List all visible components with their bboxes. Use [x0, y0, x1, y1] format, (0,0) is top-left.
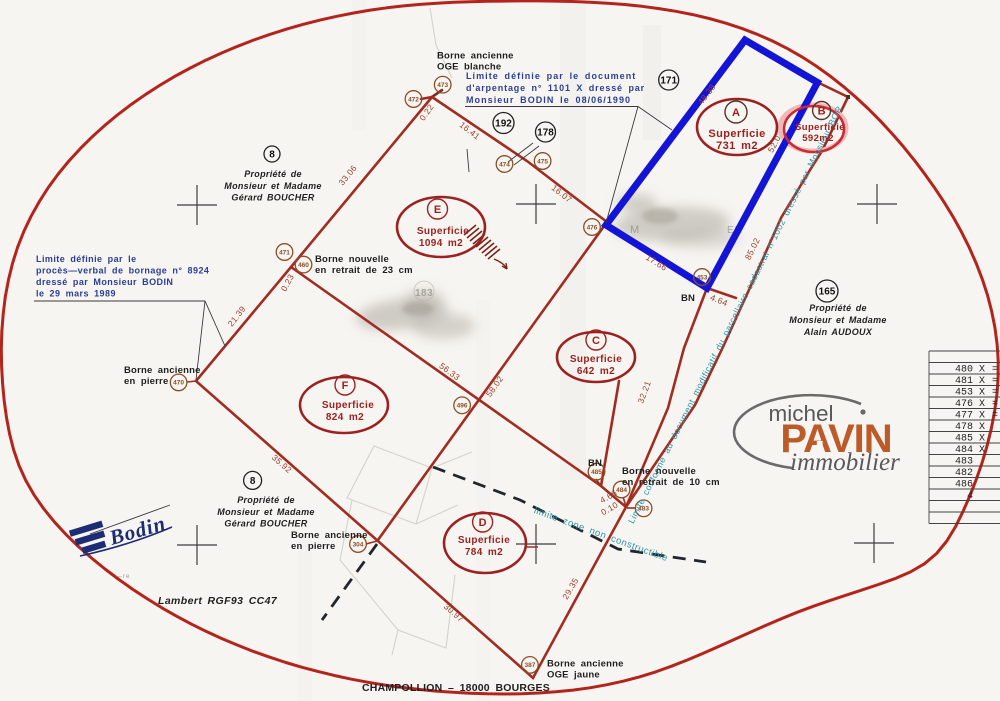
svg-text:481: 481: [955, 376, 973, 387]
svg-text:496: 496: [457, 403, 468, 410]
svg-text:en retrait de 23 cm: en retrait de 23 cm: [315, 265, 413, 276]
svg-text:Lambert RGF93 CC47: Lambert RGF93 CC47: [158, 595, 278, 607]
svg-text:Gérard BOUCHER: Gérard BOUCHER: [231, 193, 314, 203]
svg-text:483: 483: [955, 457, 973, 468]
svg-text:A: A: [732, 107, 740, 119]
svg-text:Monsieur et Madame: Monsieur et Madame: [224, 181, 321, 191]
svg-text:Monsieur et Madame: Monsieur et Madame: [217, 507, 314, 517]
svg-text:178: 178: [537, 128, 554, 139]
svg-text:=: =: [992, 365, 998, 376]
svg-text:171: 171: [660, 76, 677, 87]
svg-text:8: 8: [250, 476, 256, 487]
svg-text:472: 472: [408, 96, 419, 103]
svg-text:—re: —re: [116, 574, 130, 580]
svg-text:192: 192: [495, 119, 512, 130]
svg-text:dressé par Monsieur BODIN: dressé par Monsieur BODIN: [36, 277, 173, 287]
svg-text:X: X: [979, 422, 985, 433]
svg-text:BN: BN: [588, 458, 602, 469]
svg-text:470: 470: [173, 380, 184, 387]
svg-text:Superficie: Superficie: [570, 354, 622, 365]
svg-text:X: X: [979, 388, 985, 399]
svg-text:387: 387: [524, 662, 535, 669]
svg-text:476: 476: [587, 224, 598, 231]
svg-text:le 29 mars 1989: le 29 mars 1989: [36, 289, 116, 299]
svg-text:731 m2: 731 m2: [716, 140, 758, 152]
svg-text:0.23: 0.23: [279, 272, 296, 293]
svg-text:165: 165: [819, 287, 836, 298]
svg-text:X: X: [979, 365, 985, 376]
svg-text:en pierre: en pierre: [291, 541, 335, 552]
svg-text:X: X: [979, 434, 985, 445]
svg-text:Propriété de: Propriété de: [237, 495, 295, 505]
svg-text:C: C: [592, 335, 600, 347]
svg-text:1094 m2: 1094 m2: [419, 238, 463, 249]
svg-text:Borne nouvelle: Borne nouvelle: [622, 466, 696, 477]
svg-text:471: 471: [279, 249, 290, 256]
svg-text:Limite définie par le: Limite définie par le: [36, 254, 137, 264]
svg-text:183: 183: [415, 288, 433, 299]
svg-text:Propriété de: Propriété de: [244, 169, 302, 179]
svg-text:484: 484: [955, 445, 973, 456]
svg-text:784 m2: 784 m2: [465, 547, 503, 558]
svg-text:482: 482: [955, 468, 973, 479]
svg-text:M: M: [630, 224, 640, 236]
svg-text:Monsieur et Madame: Monsieur et Madame: [789, 315, 886, 325]
svg-text:453: 453: [697, 274, 708, 281]
svg-text:Gérard BOUCHER: Gérard BOUCHER: [224, 519, 307, 529]
svg-text:Alain AUDOUX: Alain AUDOUX: [803, 327, 873, 337]
svg-text:Superficie: Superficie: [417, 226, 469, 237]
svg-text:X: X: [979, 399, 985, 410]
svg-text:BN: BN: [681, 293, 695, 304]
svg-text:8: 8: [269, 150, 275, 161]
svg-text:473: 473: [437, 82, 448, 89]
svg-text:485: 485: [955, 434, 973, 445]
svg-text:en retrait de 10 cm: en retrait de 10 cm: [622, 477, 720, 488]
svg-text:Superficie: Superficie: [795, 122, 845, 133]
svg-text:D: D: [479, 517, 487, 529]
svg-text:=: =: [992, 376, 998, 387]
svg-text:33.06: 33.06: [336, 163, 358, 187]
svg-text:824 m2: 824 m2: [326, 412, 364, 423]
svg-text:476: 476: [955, 399, 973, 410]
svg-text:480: 480: [955, 365, 973, 376]
svg-text:486: 486: [955, 480, 973, 491]
svg-text:Borne ancienne: Borne ancienne: [547, 659, 624, 670]
svg-text:477: 477: [955, 411, 973, 422]
svg-text:d'arpentage n° 1101 X dressé p: d'arpentage n° 1101 X dressé par: [466, 83, 645, 93]
svg-text:Superficie: Superficie: [458, 535, 510, 546]
svg-text:CHAMPOLLION – 18000 BOURGES: CHAMPOLLION – 18000 BOURGES: [362, 682, 550, 694]
svg-text:OGE jaune: OGE jaune: [547, 670, 600, 681]
svg-text:E: E: [434, 204, 441, 216]
svg-text:=: =: [992, 411, 998, 422]
svg-text:B: B: [818, 106, 826, 118]
svg-text:Limite définie par le document: Limite définie par le document: [466, 71, 636, 81]
svg-text:=: =: [992, 388, 998, 399]
svg-text:en pierre: en pierre: [124, 376, 168, 387]
svg-text:Borne nouvelle: Borne nouvelle: [315, 254, 389, 265]
svg-text:642 m2: 642 m2: [577, 366, 615, 377]
svg-text:Borne ancienne: Borne ancienne: [437, 51, 514, 62]
svg-text:4: 4: [967, 491, 973, 502]
svg-text:460: 460: [298, 262, 309, 269]
svg-text:X: X: [979, 376, 985, 387]
svg-text:304: 304: [353, 541, 364, 548]
svg-text:Borne ancienne: Borne ancienne: [291, 530, 368, 541]
svg-text:474: 474: [499, 161, 510, 168]
svg-text:X: X: [979, 445, 985, 456]
svg-text:Monsieur BODIN le 08/06/1990: Monsieur BODIN le 08/06/1990: [466, 95, 631, 105]
svg-text:F: F: [342, 380, 349, 392]
svg-text:procès—verbal de bornage n° 89: procès—verbal de bornage n° 8924: [36, 266, 209, 276]
svg-text:immobilier: immobilier: [790, 449, 900, 476]
svg-text:475: 475: [537, 158, 548, 165]
svg-text:30.97: 30.97: [442, 601, 466, 624]
svg-text:Superficie: Superficie: [708, 128, 765, 140]
svg-text:478: 478: [955, 422, 973, 433]
svg-text:453: 453: [955, 388, 973, 399]
svg-text:=: =: [992, 399, 998, 410]
svg-text:32.21: 32.21: [636, 379, 653, 404]
svg-text:Superficie: Superficie: [322, 400, 374, 411]
svg-text:X: X: [979, 411, 985, 422]
svg-text:485: 485: [591, 469, 602, 476]
svg-text:Borne ancienne: Borne ancienne: [124, 365, 201, 376]
svg-text:Propriété de: Propriété de: [809, 303, 867, 313]
